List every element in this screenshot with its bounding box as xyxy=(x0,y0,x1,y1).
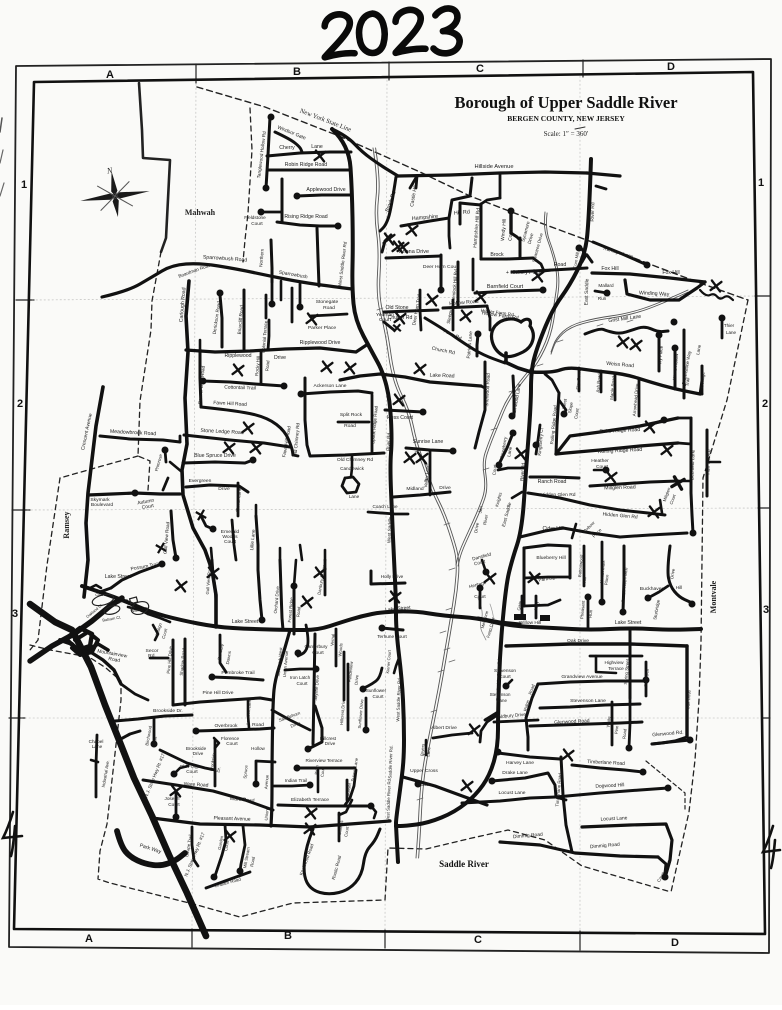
svg-text:Court: Court xyxy=(372,694,384,699)
svg-text:Montvale: Montvale xyxy=(709,580,718,613)
svg-text:3: 3 xyxy=(12,608,18,620)
svg-text:Saddle River: Saddle River xyxy=(439,859,489,869)
svg-text:Lane: Lane xyxy=(349,494,360,499)
svg-text:Lake Road: Lake Road xyxy=(429,373,454,380)
svg-text:Huff Terrace: Huff Terrace xyxy=(706,449,712,475)
svg-text:Grandview Avenue: Grandview Avenue xyxy=(561,674,603,680)
svg-text:Brock: Brock xyxy=(490,252,504,258)
svg-text:Blue Spruce Drive: Blue Spruce Drive xyxy=(194,453,236,459)
svg-text:Cottontail Trail: Cottontail Trail xyxy=(224,384,256,391)
svg-text:Holly Drive: Holly Drive xyxy=(381,574,404,579)
svg-text:Upper Cross: Upper Cross xyxy=(410,768,438,774)
svg-text:Split Rock: Split Rock xyxy=(340,412,363,418)
svg-text:Brookside Dr.: Brookside Dr. xyxy=(153,708,183,714)
svg-text:Rising Ridge Road: Rising Ridge Road xyxy=(284,214,327,220)
svg-text:Coach Lane: Coach Lane xyxy=(372,504,398,509)
svg-text:Road: Road xyxy=(554,262,567,268)
svg-text:Anona Drive: Anona Drive xyxy=(399,249,429,255)
svg-text:Sunflower: Sunflower xyxy=(366,688,387,693)
svg-text:Stonegate: Stonegate xyxy=(316,299,339,305)
svg-text:Lake Street: Lake Street xyxy=(232,619,259,625)
svg-text:Drive: Drive xyxy=(193,751,204,756)
svg-text:Harvey Lane: Harvey Lane xyxy=(506,760,534,766)
svg-text:Court: Court xyxy=(507,228,514,241)
svg-text:Albert Drive: Albert Drive xyxy=(431,725,457,731)
svg-text:Terrace: Terrace xyxy=(608,666,624,671)
svg-text:Pine: Pine xyxy=(614,725,620,735)
svg-text:Buckhaven: Buckhaven xyxy=(640,586,665,592)
svg-text:1: 1 xyxy=(758,177,764,189)
svg-text:East Saddle: East Saddle xyxy=(584,278,591,305)
svg-text:Cherry: Cherry xyxy=(279,145,295,151)
svg-text:Barnfield Court: Barnfield Court xyxy=(487,284,524,290)
svg-text:Lane: Lane xyxy=(726,330,737,335)
svg-text:Road: Road xyxy=(344,423,356,429)
svg-text:Borough of Upper Saddle River: Borough of Upper Saddle River xyxy=(454,93,677,112)
svg-text:Thier: Thier xyxy=(724,323,735,328)
svg-text:Deer Horn Court: Deer Horn Court xyxy=(423,264,460,270)
svg-text:Lane: Lane xyxy=(311,144,323,150)
svg-text:Hill: Hill xyxy=(676,585,682,590)
svg-text:River Rd: River Rd xyxy=(386,432,392,451)
svg-text:3: 3 xyxy=(763,604,769,616)
svg-text:Drive: Drive xyxy=(274,355,286,361)
svg-text:Blueberry Hill: Blueberry Hill xyxy=(536,555,565,561)
svg-text:C: C xyxy=(474,934,482,946)
svg-text:Fieldstone: Fieldstone xyxy=(244,215,266,220)
svg-text:Stevenson Lane: Stevenson Lane xyxy=(570,698,606,704)
svg-text:Vernal: Vernal xyxy=(329,634,335,647)
svg-text:Overbrook: Overbrook xyxy=(214,723,238,729)
svg-text:Canterbury: Canterbury xyxy=(304,644,328,649)
svg-text:Court: Court xyxy=(226,741,238,746)
svg-text:Court: Court xyxy=(492,464,498,476)
svg-text:Ackerson Lane: Ackerson Lane xyxy=(314,383,347,389)
svg-text:Scale: 1″ = 360′: Scale: 1″ = 360′ xyxy=(544,130,589,138)
svg-text:Court: Court xyxy=(224,539,237,545)
svg-text:Terhune Court: Terhune Court xyxy=(377,634,407,639)
svg-text:Midland: Midland xyxy=(406,486,424,492)
svg-text:Riverview Terrace: Riverview Terrace xyxy=(306,758,343,763)
svg-text:Pine Hill Drive: Pine Hill Drive xyxy=(202,690,233,696)
svg-text:Run: Run xyxy=(598,296,607,301)
svg-text:Court: Court xyxy=(474,594,486,599)
svg-text:Locust Lane: Locust Lane xyxy=(499,790,526,796)
svg-text:Road: Road xyxy=(252,722,264,728)
svg-text:Applewood Drive: Applewood Drive xyxy=(306,187,345,193)
svg-text:Fox Hill: Fox Hill xyxy=(662,270,679,276)
svg-text:Court: Court xyxy=(320,766,326,777)
svg-text:Dr.: Dr. xyxy=(216,767,222,773)
svg-text:Court: Court xyxy=(596,464,609,470)
svg-text:Boulevard: Boulevard xyxy=(91,502,113,508)
svg-text:D: D xyxy=(667,61,675,73)
svg-text:Lane: Lane xyxy=(92,744,103,749)
svg-text:Road: Road xyxy=(622,728,628,739)
svg-text:Oak Drive: Oak Drive xyxy=(567,638,589,644)
svg-text:Old Chimney Rd: Old Chimney Rd xyxy=(337,457,373,463)
svg-text:Road: Road xyxy=(296,606,302,617)
svg-text:West Saddle: West Saddle xyxy=(387,516,393,543)
svg-text:Ripplewood: Ripplewood xyxy=(224,353,251,359)
svg-text:Fox Hill: Fox Hill xyxy=(601,266,618,272)
svg-text:+ Hickory Place: + Hickory Place xyxy=(506,270,542,276)
svg-text:D: D xyxy=(671,937,679,949)
svg-text:Heather: Heather xyxy=(591,458,609,464)
svg-text:Sunrise Lane: Sunrise Lane xyxy=(413,439,444,445)
svg-text:1: 1 xyxy=(21,179,27,191)
svg-text:Court: Court xyxy=(251,221,263,226)
svg-text:C: C xyxy=(476,63,484,75)
svg-text:Rd.: Rd. xyxy=(148,653,156,659)
svg-text:A: A xyxy=(85,933,93,945)
svg-text:Drake Lane: Drake Lane xyxy=(502,770,528,776)
svg-text:Run: Run xyxy=(588,609,594,618)
svg-text:Joseph: Joseph xyxy=(164,796,179,801)
svg-text:Hillside Avenue: Hillside Avenue xyxy=(475,164,514,170)
svg-text:Court: Court xyxy=(186,769,198,774)
svg-text:Court: Court xyxy=(95,592,105,597)
svg-text:Candlewick: Candlewick xyxy=(340,466,364,471)
svg-text:Hill: Hill xyxy=(582,577,588,583)
svg-text:Hidden Glen Rd: Hidden Glen Rd xyxy=(540,492,575,498)
svg-text:Court: Court xyxy=(296,681,308,686)
svg-text:Lane: Lane xyxy=(426,746,432,757)
svg-text:Iron Latch: Iron Latch xyxy=(290,675,311,680)
svg-text:Drive: Drive xyxy=(439,485,451,491)
svg-text:Lake Street: Lake Street xyxy=(615,620,642,626)
svg-text:Old Stone: Old Stone xyxy=(385,305,408,311)
svg-text:Elizabeth Terrace: Elizabeth Terrace xyxy=(291,797,329,803)
svg-text:Willow Hill: Willow Hill xyxy=(519,620,542,626)
svg-text:Drive: Drive xyxy=(218,486,230,492)
svg-text:Place: Place xyxy=(604,574,610,586)
svg-text:Cider Hill: Cider Hill xyxy=(542,526,563,532)
svg-text:Birch: Birch xyxy=(314,764,320,775)
svg-text:Parker Place: Parker Place xyxy=(308,325,337,331)
svg-text:Court: Court xyxy=(379,317,392,323)
svg-text:Mahwah: Mahwah xyxy=(185,208,216,217)
svg-text:Hollow: Hollow xyxy=(251,746,265,751)
svg-text:B: B xyxy=(284,930,292,942)
svg-text:Court: Court xyxy=(168,802,180,807)
svg-text:Union: Union xyxy=(264,808,270,820)
svg-text:Road: Road xyxy=(323,305,335,311)
svg-text:Indian Trail: Indian Trail xyxy=(285,778,307,783)
svg-text:B: B xyxy=(293,66,301,78)
svg-text:Evergreen: Evergreen xyxy=(189,478,212,484)
svg-text:Drive: Drive xyxy=(325,741,336,746)
svg-text:Court: Court xyxy=(312,650,324,655)
svg-text:Road: Road xyxy=(265,360,271,372)
svg-text:BERGEN COUNTY, NEW JERSEY: BERGEN COUNTY, NEW JERSEY xyxy=(507,114,625,123)
svg-text:Ramsey: Ramsey xyxy=(62,511,71,538)
svg-text:Ranch Road: Ranch Road xyxy=(538,479,567,485)
svg-text:A: A xyxy=(106,69,114,81)
svg-text:2: 2 xyxy=(762,398,768,410)
svg-text:River Rd: River Rd xyxy=(590,202,597,222)
svg-text:Mallard: Mallard xyxy=(598,283,614,288)
svg-text:Millglen Road: Millglen Road xyxy=(604,484,636,491)
svg-text:White: White xyxy=(606,716,612,728)
svg-text:Pembroke Trail: Pembroke Trail xyxy=(221,670,254,676)
svg-text:Drive: Drive xyxy=(354,674,360,685)
svg-text:2: 2 xyxy=(17,398,23,410)
svg-text:Highview: Highview xyxy=(605,660,625,665)
svg-text:Ripplewood Drive: Ripplewood Drive xyxy=(300,340,341,346)
svg-text:Robin Ridge Road: Robin Ridge Road xyxy=(285,162,328,168)
svg-text:Road: Road xyxy=(417,782,429,788)
svg-text:Hess Court: Hess Court xyxy=(387,415,414,421)
svg-text:Deerfield Lane: Deerfield Lane xyxy=(689,449,695,480)
svg-text:Lake Street: Lake Street xyxy=(105,574,132,580)
